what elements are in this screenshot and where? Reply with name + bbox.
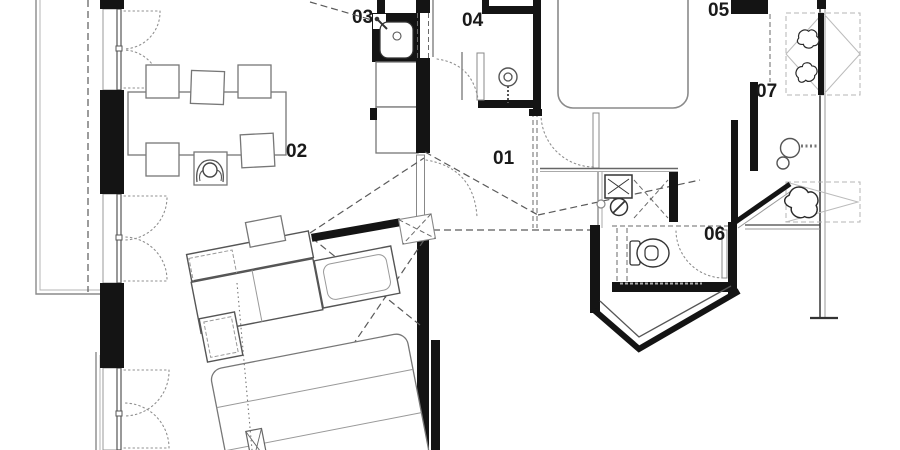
- washing-machine: [605, 175, 632, 198]
- low-bed: [209, 332, 430, 450]
- window: [103, 194, 122, 283]
- pedestal-fixture: [777, 139, 818, 170]
- room-label-02: 02: [286, 141, 307, 162]
- room-label-01: 01: [493, 148, 515, 169]
- door-swing: [541, 114, 594, 167]
- wc-room: 06: [612, 222, 737, 295]
- dining-area: 02: [128, 65, 307, 185]
- shower-room: 04: [433, 0, 541, 110]
- room-label-07: 07: [756, 81, 777, 102]
- room-label-04: 04: [462, 10, 484, 31]
- double-bed: [558, 0, 688, 108]
- dining-chair: [146, 143, 179, 176]
- plant: [793, 60, 820, 85]
- entry-cabinet: [399, 214, 436, 244]
- person-head: [203, 163, 217, 177]
- shower-head: [499, 68, 517, 103]
- seated-person: [194, 152, 227, 185]
- floor-plan-canvas: 02 03: [0, 0, 900, 450]
- terrace-edge: [36, 0, 100, 450]
- kitchen-sink: [375, 17, 413, 58]
- angled-wall: [311, 218, 401, 242]
- door-leaf: [417, 155, 425, 217]
- door-swing: [437, 59, 478, 99]
- kitchen-counter: [376, 107, 418, 153]
- room-label-03: 03: [352, 7, 373, 28]
- plant: [796, 27, 821, 50]
- room-label-05: 05: [708, 0, 730, 21]
- side-table: [199, 312, 243, 362]
- dining-chair: [146, 65, 179, 98]
- toilet: [630, 239, 669, 267]
- room-label-06: 06: [704, 224, 725, 245]
- living-area: [187, 214, 436, 450]
- kitchen-counter: [376, 62, 418, 107]
- laundry-closet: [540, 169, 678, 229]
- door-leaf: [477, 53, 484, 100]
- kitchen: 03: [352, 0, 477, 217]
- dining-chair: [240, 133, 275, 168]
- window: [103, 9, 122, 90]
- entry-door-leaf: [593, 113, 599, 168]
- wardrobe-planter-box: [786, 13, 860, 95]
- chaise: [314, 246, 400, 308]
- window: [103, 368, 122, 450]
- dining-chair: [238, 65, 271, 98]
- door-swing: [426, 160, 477, 217]
- bedroom: 05: [558, 0, 770, 222]
- floor-plan-page: 02 03: [0, 0, 900, 450]
- wardrobe-planter-box: [734, 181, 860, 228]
- dining-chair: [190, 70, 224, 104]
